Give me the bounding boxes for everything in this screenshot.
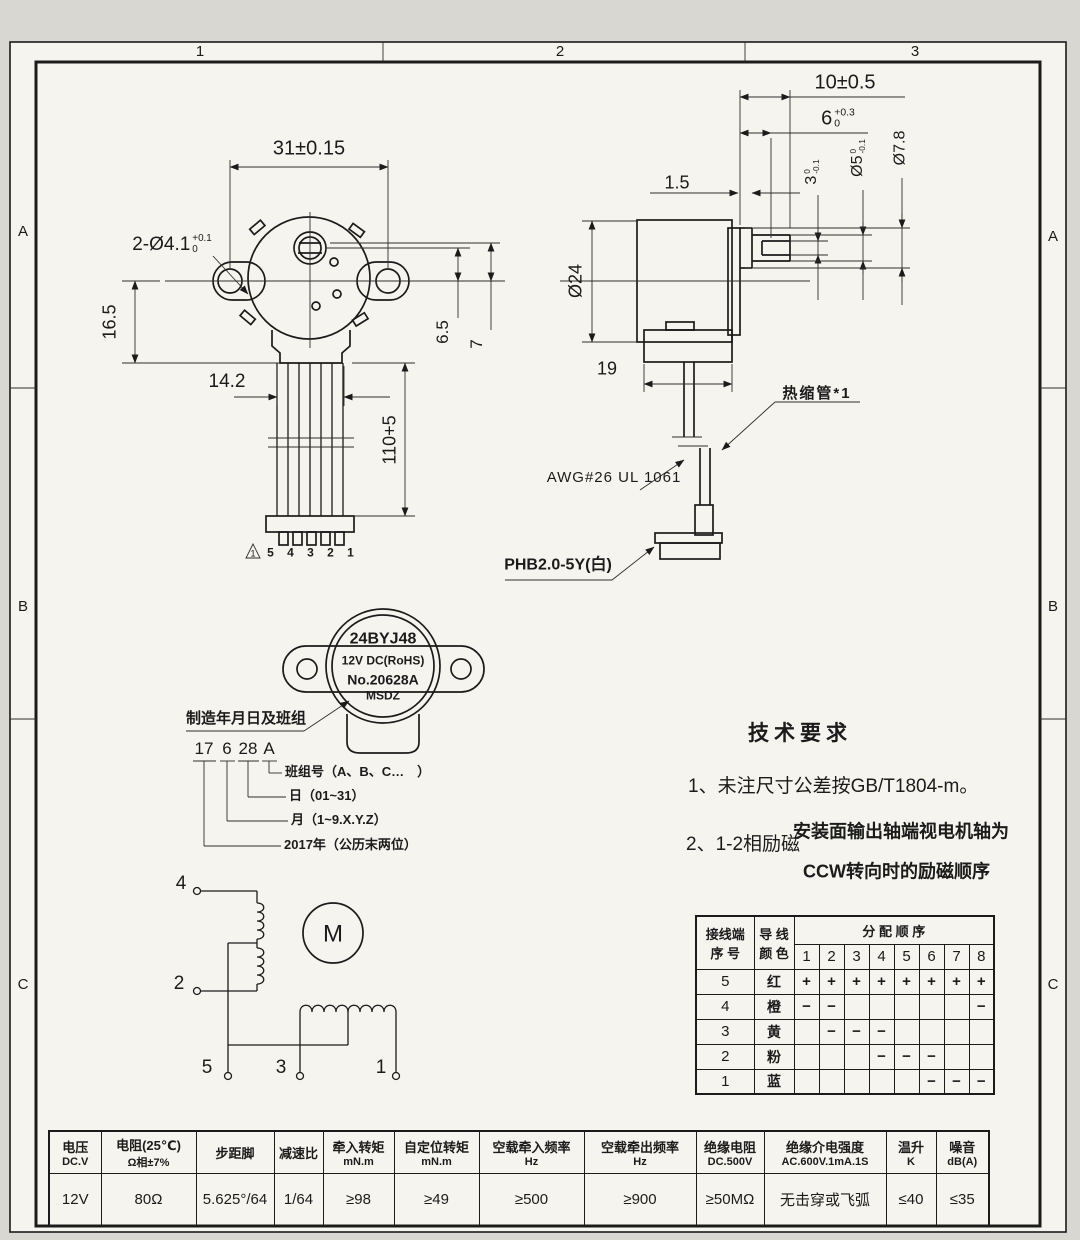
nameplate-serial: No.20628A xyxy=(347,673,419,688)
phase-cell: − xyxy=(919,1044,944,1069)
phase-cell: + xyxy=(894,969,919,994)
zone-letter-b-left: B xyxy=(18,599,28,615)
dim-bundle-width: 14.2 xyxy=(209,372,246,392)
spec-header: 温升K xyxy=(886,1131,936,1173)
phase-step: 7 xyxy=(944,944,969,969)
phase-terminal: 1 xyxy=(696,1069,754,1094)
spec-header: 绝缘电阻DC.500V xyxy=(696,1131,764,1173)
phase-step: 4 xyxy=(869,944,894,969)
nameplate-view xyxy=(186,609,484,846)
spec-value: ≥50MΩ xyxy=(696,1173,764,1226)
phase-cell: − xyxy=(944,1069,969,1094)
dim-flat-width-tolerance: 0-0.1 xyxy=(803,159,821,173)
phase-step: 3 xyxy=(844,944,869,969)
phase-cell xyxy=(894,994,919,1019)
dim-body-diameter: Ø24 xyxy=(567,264,586,298)
phase-cell: − xyxy=(894,1044,919,1069)
zone-letter-b-right: B xyxy=(1048,599,1058,615)
phase-cell: − xyxy=(819,1019,844,1044)
terminal-label-2: 2 xyxy=(174,974,185,994)
callout-month: 月（1~9.X.Y.Z） xyxy=(291,813,387,827)
phase-color: 黄 xyxy=(754,1019,794,1044)
date-code-shift: A xyxy=(263,740,274,758)
connector-type-label: PHB2.0-5Y(白) xyxy=(504,558,612,575)
phase-cell xyxy=(844,1069,869,1094)
dim-shaft-offset-2: 7 xyxy=(468,339,486,348)
tech-req-item2-label: 2、1-2相励磁 xyxy=(686,835,800,855)
dim-mounting-width: 31±0.15 xyxy=(273,139,345,160)
tech-req-item2-line1: 安装面输出轴端视电机轴为 xyxy=(793,823,1009,842)
date-code-month: 6 xyxy=(222,740,231,758)
phase-cell xyxy=(844,1044,869,1069)
phase-row: 1 蓝 − − − xyxy=(696,1069,994,1094)
phase-row: 3 黄 − − − xyxy=(696,1019,994,1044)
phase-terminal: 5 xyxy=(696,969,754,994)
phase-table: 接线端序 号 导 线颜 色 分 配 顺 序 1 2 3 4 5 6 7 8 5 … xyxy=(695,915,995,1095)
phase-cell: − xyxy=(969,994,994,1019)
spec-value: 1/64 xyxy=(274,1173,323,1226)
phase-row: 5 红 + + + + + + + + xyxy=(696,969,994,994)
dim-flat-width-value: 3 xyxy=(804,176,821,185)
tech-req-item1: 1、未注尺寸公差按GB/T1804-m。 xyxy=(688,777,978,797)
spec-header: 空载牵入频率Hz xyxy=(479,1131,584,1173)
dim-flat-length-tolerance: +0.30 xyxy=(834,108,855,131)
phase-header-terminal: 接线端序 号 xyxy=(696,916,754,969)
phase-cell: + xyxy=(944,969,969,994)
phase-cell: − xyxy=(819,994,844,1019)
note-marker-number: 1 xyxy=(250,549,255,558)
terminal-label-4: 4 xyxy=(176,874,187,894)
phase-step: 8 xyxy=(969,944,994,969)
tech-req-title: 技术要求 xyxy=(748,723,852,745)
phase-cell: + xyxy=(819,969,844,994)
phase-cell: − xyxy=(869,1044,894,1069)
phase-terminal: 3 xyxy=(696,1019,754,1044)
wiring-diagram xyxy=(194,888,400,1080)
phase-step: 2 xyxy=(819,944,844,969)
spec-header: 牵入转矩mN.m xyxy=(323,1131,394,1173)
dim-shaft-length: 10±0.5 xyxy=(814,73,875,94)
phase-cell: + xyxy=(919,969,944,994)
callout-year: 2017年（公历末两位） xyxy=(284,838,417,852)
spec-value-row: 12V 80Ω 5.625°/64 1/64 ≥98 ≥49 ≥500 ≥900… xyxy=(49,1173,989,1226)
nameplate-maker: MSDZ xyxy=(366,690,400,703)
spec-value: ≥500 xyxy=(479,1173,584,1226)
front-view xyxy=(122,160,505,558)
nameplate-voltage: 12V DC(RoHS) xyxy=(342,655,425,668)
phase-terminal: 4 xyxy=(696,994,754,1019)
dim-shaft-diameter-value: Ø5 xyxy=(850,155,867,176)
engineering-drawing-sheet: { "frame": { "top_zones": ["1", "2", "3"… xyxy=(0,0,1080,1240)
spec-value: ≤35 xyxy=(936,1173,989,1226)
phase-cell: − xyxy=(794,994,819,1019)
phase-cell xyxy=(969,1019,994,1044)
dim-shaft-diameter-tolerance: 0-0.1 xyxy=(849,139,867,153)
callout-shift: 班组号（A、B、C… ） xyxy=(285,765,430,779)
phase-cell: + xyxy=(844,969,869,994)
phase-step: 6 xyxy=(919,944,944,969)
phase-cell xyxy=(844,994,869,1019)
dim-wire-length: 110+5 xyxy=(381,415,400,464)
spec-value: ≥49 xyxy=(394,1173,479,1226)
phase-cell: − xyxy=(969,1069,994,1094)
dim-face-offset: 16.5 xyxy=(101,304,120,339)
wire-bundle xyxy=(277,363,343,516)
zone-letter-c-right: C xyxy=(1048,977,1059,993)
phase-cell xyxy=(969,1044,994,1069)
phase-cell xyxy=(869,1069,894,1094)
date-code-title: 制造年月日及班组 xyxy=(186,711,306,727)
phase-cell: + xyxy=(794,969,819,994)
phase-cell: + xyxy=(869,969,894,994)
zone-letter-a-right: A xyxy=(1048,229,1058,245)
spec-value: ≥98 xyxy=(323,1173,394,1226)
dim-step: 1.5 xyxy=(664,174,689,193)
spec-header: 自定位转矩mN.m xyxy=(394,1131,479,1173)
dim-holes-tolerance: +0.10 xyxy=(192,234,212,256)
front-dimensions xyxy=(122,160,505,558)
spec-header: 噪音dB(A) xyxy=(936,1131,989,1173)
phase-color: 粉 xyxy=(754,1044,794,1069)
phase-header-color: 导 线颜 色 xyxy=(754,916,794,969)
phase-row: 2 粉 − − − xyxy=(696,1044,994,1069)
phase-cell: + xyxy=(969,969,994,994)
spec-value: 12V xyxy=(49,1173,101,1226)
phase-cell xyxy=(794,1044,819,1069)
terminal-label-1: 1 xyxy=(376,1058,387,1078)
spec-value: 5.625°/64 xyxy=(196,1173,274,1226)
spec-value: ≥900 xyxy=(584,1173,696,1226)
phase-color: 红 xyxy=(754,969,794,994)
phase-header-sequence: 分 配 顺 序 xyxy=(794,916,994,944)
spec-header-row: 电压DC.V 电阻(25℃)Ω相±7% 步距脚 减速比 牵入转矩mN.m 自定位… xyxy=(49,1131,989,1173)
phase-cell: − xyxy=(844,1019,869,1044)
dim-holes-value: 2-Ø4.1 xyxy=(132,235,190,255)
zone-number-2: 2 xyxy=(556,44,564,60)
spec-value: ≤40 xyxy=(886,1173,936,1226)
spec-value: 无击穿或飞弧 xyxy=(764,1173,886,1226)
spec-value: 80Ω xyxy=(101,1173,196,1226)
spec-table: 电压DC.V 电阻(25℃)Ω相±7% 步距脚 减速比 牵入转矩mN.m 自定位… xyxy=(48,1130,990,1227)
connector-pin-numbers: 5 4 3 2 1 xyxy=(267,547,359,560)
wire-spec-label: AWG#26 UL 1061 xyxy=(547,470,682,486)
dim-body-length: 19 xyxy=(597,360,617,379)
zone-letter-a-left: A xyxy=(18,224,28,240)
phase-cell xyxy=(944,1019,969,1044)
phase-cell xyxy=(894,1019,919,1044)
dim-flat-width: 30-0.1 xyxy=(803,159,821,184)
phase-cell xyxy=(869,994,894,1019)
zone-number-1: 1 xyxy=(196,44,204,60)
terminal-label-5: 5 xyxy=(202,1058,213,1078)
dim-shaft-offset: 6.5 xyxy=(434,320,452,344)
motor-symbol: M xyxy=(323,921,343,946)
phase-cell xyxy=(919,994,944,1019)
phase-cell xyxy=(794,1069,819,1094)
phase-cell xyxy=(794,1019,819,1044)
phase-cell xyxy=(919,1019,944,1044)
phase-color: 橙 xyxy=(754,994,794,1019)
spec-header: 步距脚 xyxy=(196,1131,274,1173)
shrink-tube-label: 热缩管*1 xyxy=(782,386,851,402)
date-code-day: 28 xyxy=(239,740,258,758)
phase-cell xyxy=(944,1044,969,1069)
terminal-label-3: 3 xyxy=(276,1058,287,1078)
spec-header: 绝缘介电强度AC.600V.1mA.1S xyxy=(764,1131,886,1173)
dim-boss-diameter: Ø7.8 xyxy=(893,131,910,166)
phase-step: 1 xyxy=(794,944,819,969)
phase-color: 蓝 xyxy=(754,1069,794,1094)
zone-number-3: 3 xyxy=(911,44,919,60)
phase-cell: − xyxy=(869,1019,894,1044)
dim-shaft-diameter: Ø50-0.1 xyxy=(849,139,867,177)
phase-step: 5 xyxy=(894,944,919,969)
tech-req-item2-line2: CCW转向时的励磁顺序 xyxy=(803,863,990,882)
dim-flat-length: 6+0.30 xyxy=(821,108,855,131)
phase-cell: − xyxy=(919,1069,944,1094)
phase-cell xyxy=(944,994,969,1019)
zone-letter-c-left: C xyxy=(18,977,29,993)
spec-header: 减速比 xyxy=(274,1131,323,1173)
callout-day: 日（01~31） xyxy=(289,789,365,803)
date-code-year: 17 xyxy=(195,740,214,758)
spec-header: 空载牵出频率Hz xyxy=(584,1131,696,1173)
phase-row: 4 橙 − − − xyxy=(696,994,994,1019)
dim-flat-length-value: 6 xyxy=(821,109,832,130)
dim-mounting-holes: 2-Ø4.1+0.10 xyxy=(132,234,212,256)
phase-cell xyxy=(819,1069,844,1094)
spec-header: 电阻(25℃)Ω相±7% xyxy=(101,1131,196,1173)
phase-terminal: 2 xyxy=(696,1044,754,1069)
phase-cell xyxy=(894,1069,919,1094)
nameplate-model: 24BYJ48 xyxy=(350,632,417,649)
phase-cell xyxy=(819,1044,844,1069)
spec-header: 电压DC.V xyxy=(49,1131,101,1173)
